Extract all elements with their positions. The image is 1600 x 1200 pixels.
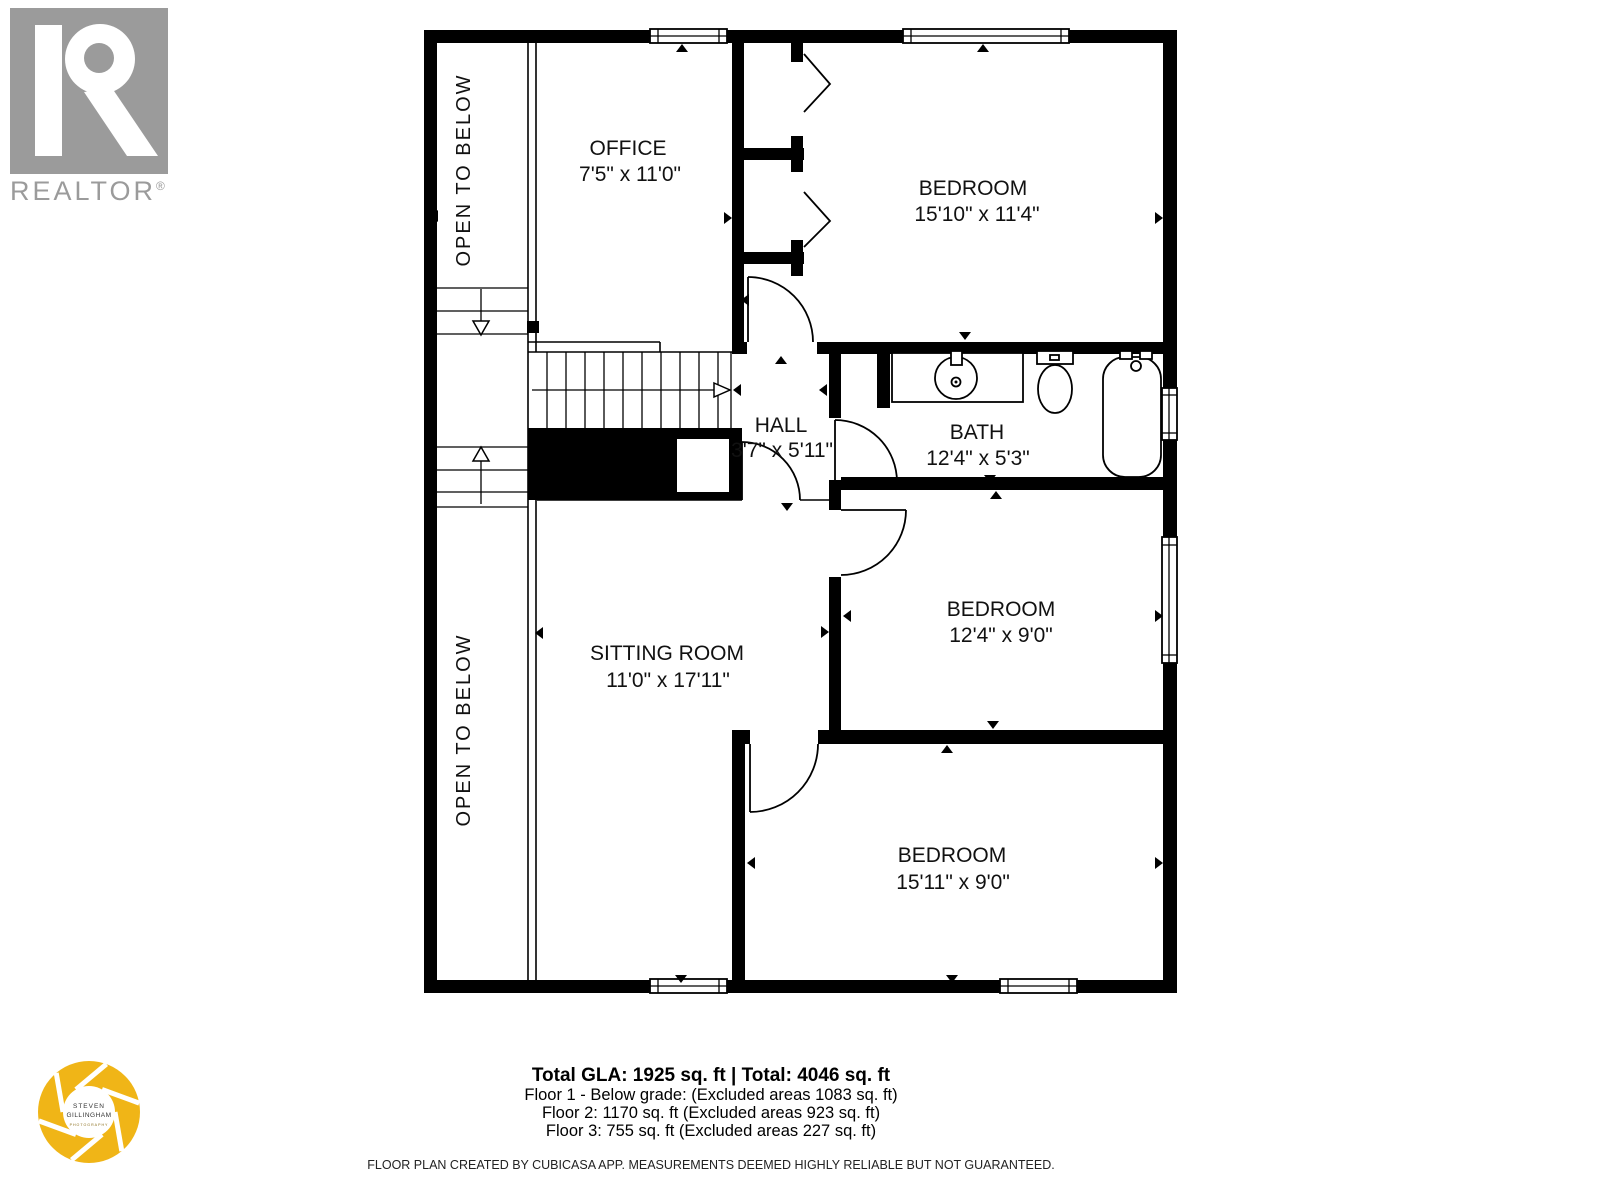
open-to-below-lower: OPEN TO BELOW <box>453 633 475 826</box>
office-label: OFFICE <box>590 137 667 160</box>
disclaimer: FLOOR PLAN CREATED BY CUBICASA APP. MEAS… <box>0 1158 1422 1172</box>
floor3-area: Floor 3: 755 sq. ft (Excluded areas 227 … <box>0 1122 1422 1140</box>
exterior-walls <box>424 30 1177 993</box>
floor-plan: OFFICE 7'5" x 11'0" BEDROOM 15'10" x 11'… <box>0 0 1600 1200</box>
area-summary: Total GLA: 1925 sq. ft | Total: 4046 sq.… <box>0 1066 1422 1140</box>
closet1-bifold-door <box>804 54 830 112</box>
floor1-area: Floor 1 - Below grade: (Excluded areas 1… <box>0 1086 1422 1104</box>
bedroom1-dims: 15'10" x 11'4" <box>914 203 1039 226</box>
bedroom2-dims: 12'4" x 9'0" <box>949 624 1053 647</box>
bath-label: BATH <box>950 421 1004 444</box>
open-to-below-upper: OPEN TO BELOW <box>453 73 475 266</box>
bedroom2-window <box>1162 537 1177 663</box>
hall-label: HALL <box>755 414 808 437</box>
floor2-area: Floor 2: 1170 sq. ft (Excluded areas 923… <box>0 1104 1422 1122</box>
closet2-bifold-door <box>804 192 830 247</box>
sitting-room-window <box>650 979 727 993</box>
bedroom1-window <box>903 29 1069 43</box>
total-gla: Total GLA: 1925 sq. ft | Total: 4046 sq.… <box>0 1066 1422 1086</box>
hall-dims: 3'7" x 5'11" <box>731 439 833 462</box>
bedroom1-label: BEDROOM <box>919 177 1028 200</box>
bedroom3-dims: 15'11" x 9'0" <box>896 871 1010 894</box>
bedroom3-label: BEDROOM <box>898 844 1007 867</box>
bath-door <box>835 420 897 482</box>
bedroom3-window <box>1000 979 1077 993</box>
office-dims: 7'5" x 11'0" <box>579 163 681 186</box>
bath-window <box>1162 388 1177 440</box>
bath-dims: 12'4" x 5'3" <box>926 447 1030 470</box>
sitting-room-label: SITTING ROOM <box>590 642 744 665</box>
bedroom1-door <box>748 277 813 342</box>
toilet-icon <box>1038 365 1072 413</box>
office-window <box>650 29 727 43</box>
bedroom2-label: BEDROOM <box>947 598 1056 621</box>
sitting-room-dims: 11'0" x 17'11" <box>606 669 730 692</box>
bedroom3-door <box>750 744 818 812</box>
bedroom2-door <box>841 510 906 575</box>
bathtub-icon <box>1103 357 1161 477</box>
measurement-markers <box>430 44 1163 983</box>
